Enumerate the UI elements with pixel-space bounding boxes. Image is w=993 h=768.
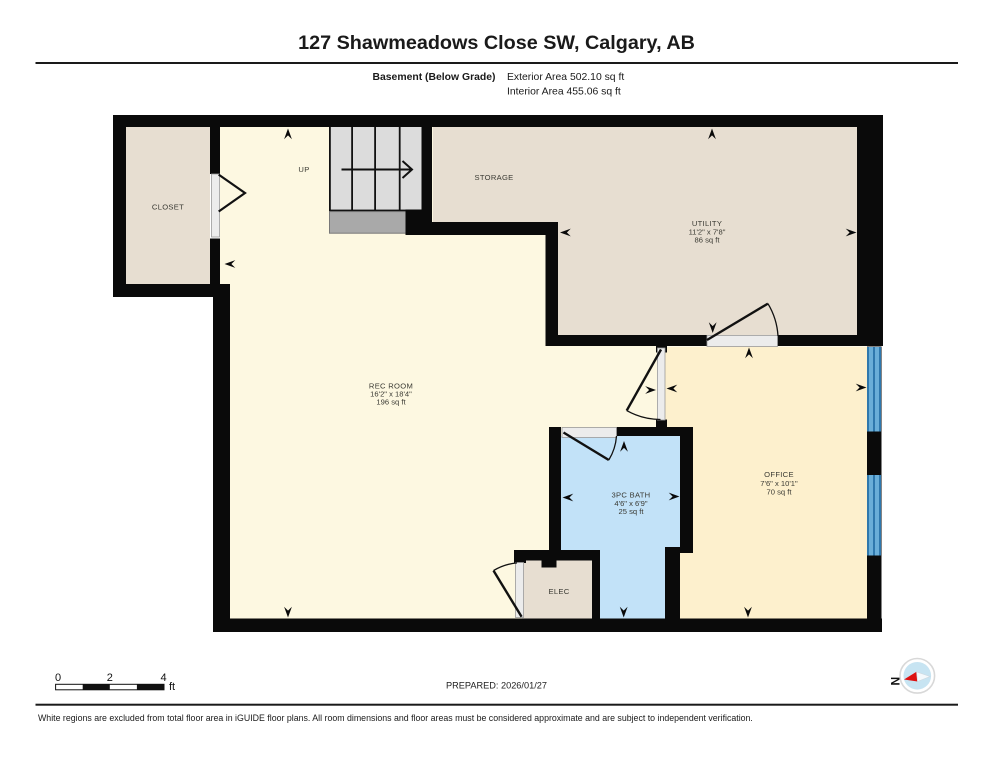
svg-text:N: N [889, 677, 903, 686]
svg-text:Exterior Area 502.10 sq ft: Exterior Area 502.10 sq ft [507, 72, 624, 83]
svg-text:Basement (Below Grade): Basement (Below Grade) [373, 72, 496, 83]
svg-text:2: 2 [107, 672, 113, 684]
svg-text:4: 4 [160, 672, 166, 684]
svg-text:196 sq ft: 196 sq ft [376, 398, 406, 407]
svg-text:127 Shawmeadows Close SW, Calg: 127 Shawmeadows Close SW, Calgary, AB [298, 32, 695, 54]
svg-text:25 sq ft: 25 sq ft [619, 507, 645, 516]
svg-text:PREPARED: 2026/01/27: PREPARED: 2026/01/27 [446, 681, 547, 691]
svg-text:86 sq ft: 86 sq ft [695, 236, 721, 245]
svg-text:0: 0 [55, 672, 61, 684]
svg-text:CLOSET: CLOSET [152, 203, 184, 212]
svg-text:STORAGE: STORAGE [474, 173, 513, 182]
svg-text:70 sq ft: 70 sq ft [767, 488, 793, 497]
svg-text:OFFICE: OFFICE [764, 470, 794, 479]
svg-text:ft: ft [169, 681, 175, 693]
svg-text:Interior Area 455.06 sq ft: Interior Area 455.06 sq ft [507, 87, 621, 98]
svg-text:UP: UP [298, 165, 309, 174]
svg-text:White regions are excluded fro: White regions are excluded from total fl… [38, 713, 753, 723]
svg-text:ELEC: ELEC [548, 587, 569, 596]
